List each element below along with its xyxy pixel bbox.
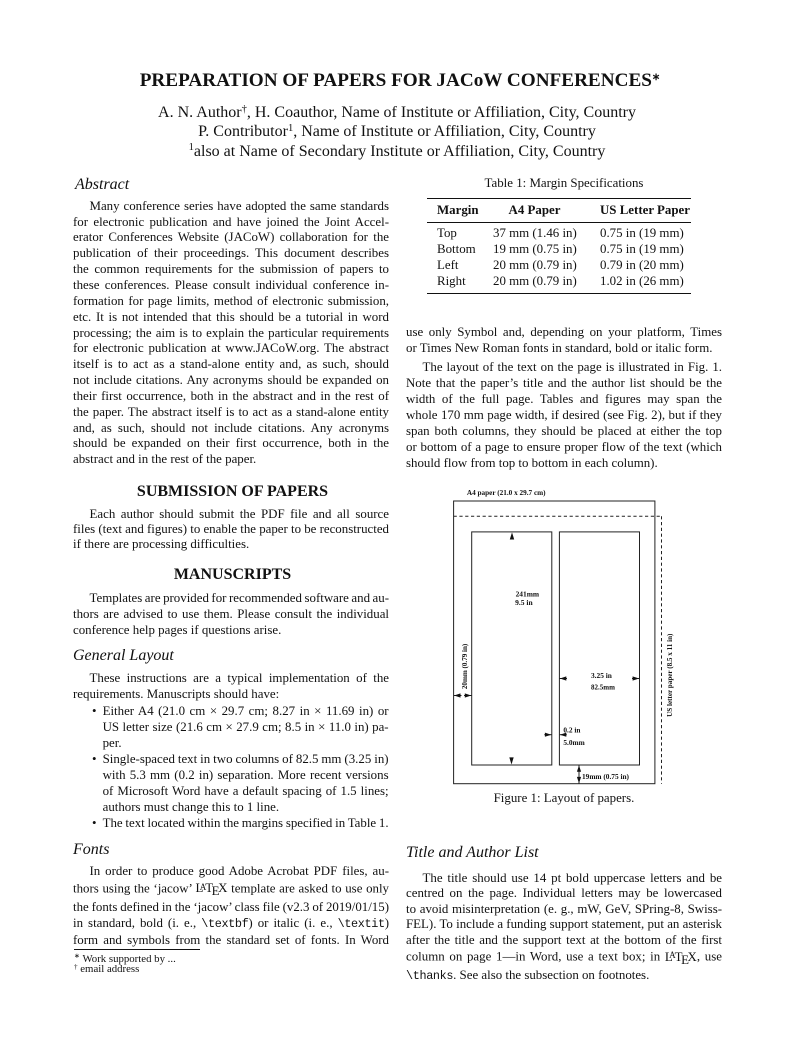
svg-text:19mm (0.75 in): 19mm (0.75 in) (582, 772, 630, 781)
svg-text:3.25 in: 3.25 in (591, 671, 612, 680)
svg-text:US letter paper (8.5 x 11 in): US letter paper (8.5 x 11 in) (665, 633, 674, 717)
svg-text:0.2 in: 0.2 in (563, 725, 580, 734)
svg-text:A4 paper (21.0 x 29.7 cm): A4 paper (21.0 x 29.7 cm) (467, 488, 546, 497)
svg-text:82.5mm: 82.5mm (591, 683, 616, 692)
svg-text:9.5 in: 9.5 in (515, 598, 533, 607)
svg-text:20mm (0.79 in): 20mm (0.79 in) (460, 643, 469, 689)
svg-text:5.0mm: 5.0mm (563, 738, 585, 747)
